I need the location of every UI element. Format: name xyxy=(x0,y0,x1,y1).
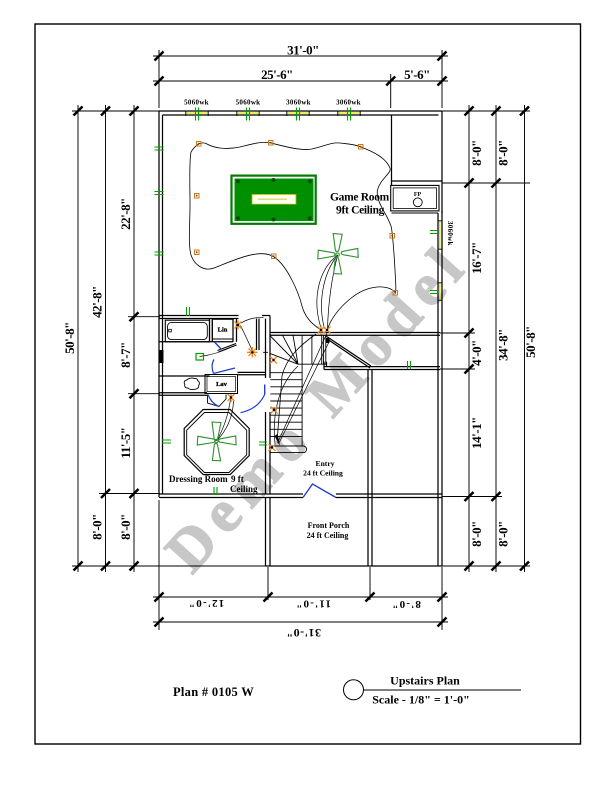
svg-text:Dressing Room: Dressing Room xyxy=(169,474,228,484)
svg-text:Game Room: Game Room xyxy=(330,192,390,204)
svg-text:8'-0": 8'-0" xyxy=(391,598,421,610)
svg-text:8'-0": 8'-0" xyxy=(118,514,133,540)
svg-text:9ft Ceiling: 9ft Ceiling xyxy=(336,205,385,217)
svg-text:31'-0": 31'-0" xyxy=(286,626,321,640)
svg-text:9 ft: 9 ft xyxy=(231,474,244,484)
svg-text:24 ft Ceiling: 24 ft Ceiling xyxy=(307,531,349,540)
svg-text:14'-1": 14'-1" xyxy=(469,417,484,449)
svg-text:11'-0": 11'-0" xyxy=(295,598,331,610)
svg-text:8'-0": 8'-0" xyxy=(469,140,484,166)
svg-text:50'-8": 50'-8" xyxy=(523,326,538,358)
svg-text:8'-0": 8'-0" xyxy=(496,521,511,547)
svg-text:5060wk: 5060wk xyxy=(236,99,261,107)
svg-text:11'-5": 11'-5" xyxy=(118,428,133,459)
svg-text:5'-6": 5'-6" xyxy=(404,67,430,82)
svg-text:Plan # 0105 W: Plan # 0105 W xyxy=(173,685,254,699)
svg-text:Upstairs Plan: Upstairs Plan xyxy=(390,674,460,688)
svg-text:8'-0": 8'-0" xyxy=(90,514,105,540)
svg-text:3060wk: 3060wk xyxy=(446,221,454,246)
svg-text:42'-8": 42'-8" xyxy=(90,286,105,318)
svg-text:Entry: Entry xyxy=(316,459,335,468)
svg-text:34'-8": 34'-8" xyxy=(496,329,511,361)
svg-text:22'-8": 22'-8" xyxy=(118,198,133,230)
svg-text:31'-0": 31'-0" xyxy=(287,42,319,57)
svg-text:Ceiling: Ceiling xyxy=(230,484,258,494)
svg-text:3060wk: 3060wk xyxy=(286,99,311,107)
svg-text:Lav: Lav xyxy=(216,381,228,388)
svg-text:12'-0": 12'-0" xyxy=(188,597,225,609)
svg-text:8'-7": 8'-7" xyxy=(118,342,133,368)
svg-text:16'-7": 16'-7" xyxy=(469,242,484,274)
svg-text:3060wk: 3060wk xyxy=(336,99,361,107)
svg-text:FP: FP xyxy=(414,192,422,198)
svg-text:4'-0": 4'-0" xyxy=(469,340,484,366)
svg-text:25'-6": 25'-6" xyxy=(261,67,293,82)
svg-text:5060wk: 5060wk xyxy=(184,99,209,107)
svg-text:8'-0": 8'-0" xyxy=(469,521,484,547)
svg-text:Front Porch: Front Porch xyxy=(308,521,350,530)
svg-text:Scale - 1/8" = 1'-0": Scale - 1/8" = 1'-0" xyxy=(372,693,469,707)
svg-text:50'-8": 50'-8" xyxy=(62,322,77,354)
svg-text:8'-0": 8'-0" xyxy=(496,140,511,166)
svg-text:24 ft Ceiling: 24 ft Ceiling xyxy=(303,469,343,478)
svg-text:Lin: Lin xyxy=(218,327,228,334)
